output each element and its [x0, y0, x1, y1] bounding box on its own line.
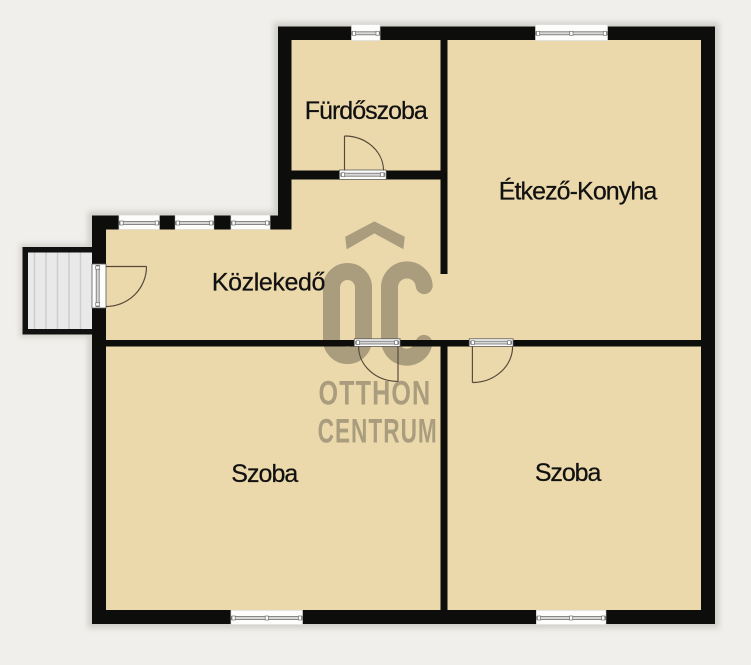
svg-text:Étkező-Konyha: Étkező-Konyha — [499, 176, 658, 205]
svg-text:Szoba: Szoba — [231, 460, 298, 488]
svg-text:Fürdőszoba: Fürdőszoba — [305, 97, 428, 125]
svg-text:OTTHON: OTTHON — [318, 375, 431, 413]
svg-text:Szoba: Szoba — [535, 459, 602, 487]
svg-text:Közlekedő: Közlekedő — [212, 269, 326, 297]
svg-text:CENTRUM: CENTRUM — [318, 413, 438, 451]
